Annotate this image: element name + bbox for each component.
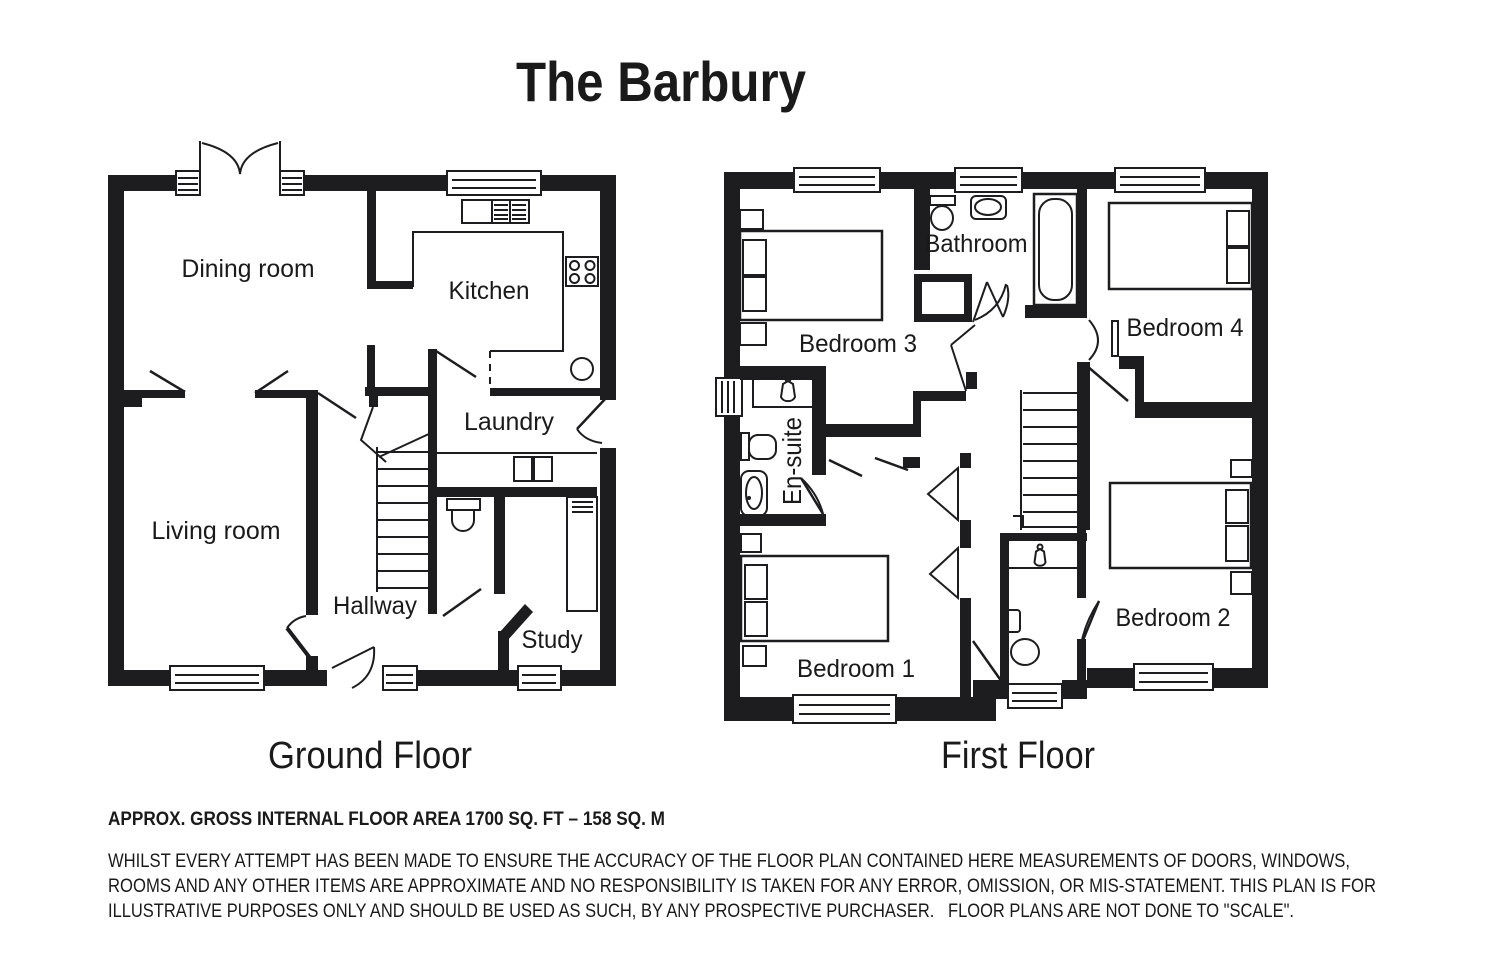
- svg-text:Bedroom 2: Bedroom 2: [1116, 604, 1231, 632]
- svg-text:Ground Floor: Ground Floor: [268, 735, 472, 777]
- svg-text:Bathroom: Bathroom: [925, 230, 1028, 258]
- svg-text:WHILST EVERY ATTEMPT HAS BEEN: WHILST EVERY ATTEMPT HAS BEEN MADE TO EN…: [108, 851, 1350, 872]
- svg-text:Study: Study: [522, 626, 583, 654]
- svg-text:Hallway: Hallway: [333, 592, 417, 620]
- svg-text:Kitchen: Kitchen: [449, 277, 530, 305]
- svg-text:Dining room: Dining room: [182, 255, 315, 283]
- svg-text:En-suite: En-suite: [777, 417, 807, 505]
- svg-text:Living room: Living room: [152, 517, 281, 545]
- svg-text:Bedroom 4: Bedroom 4: [1127, 314, 1244, 342]
- svg-text:The Barbury: The Barbury: [516, 50, 806, 113]
- svg-text:Bedroom 3: Bedroom 3: [799, 330, 917, 358]
- svg-text:ILLUSTRATIVE PURPOSES ONLY AND: ILLUSTRATIVE PURPOSES ONLY AND SHOULD BE…: [108, 901, 1294, 922]
- svg-text:ROOMS AND ANY OTHER ITEMS ARE: ROOMS AND ANY OTHER ITEMS ARE APPROXIMAT…: [108, 876, 1376, 897]
- svg-text:APPROX. GROSS INTERNAL FLOOR A: APPROX. GROSS INTERNAL FLOOR AREA 1700 S…: [108, 809, 665, 830]
- svg-text:Bedroom 1: Bedroom 1: [797, 655, 915, 683]
- svg-text:Laundry: Laundry: [464, 408, 554, 436]
- svg-text:First Floor: First Floor: [941, 735, 1095, 777]
